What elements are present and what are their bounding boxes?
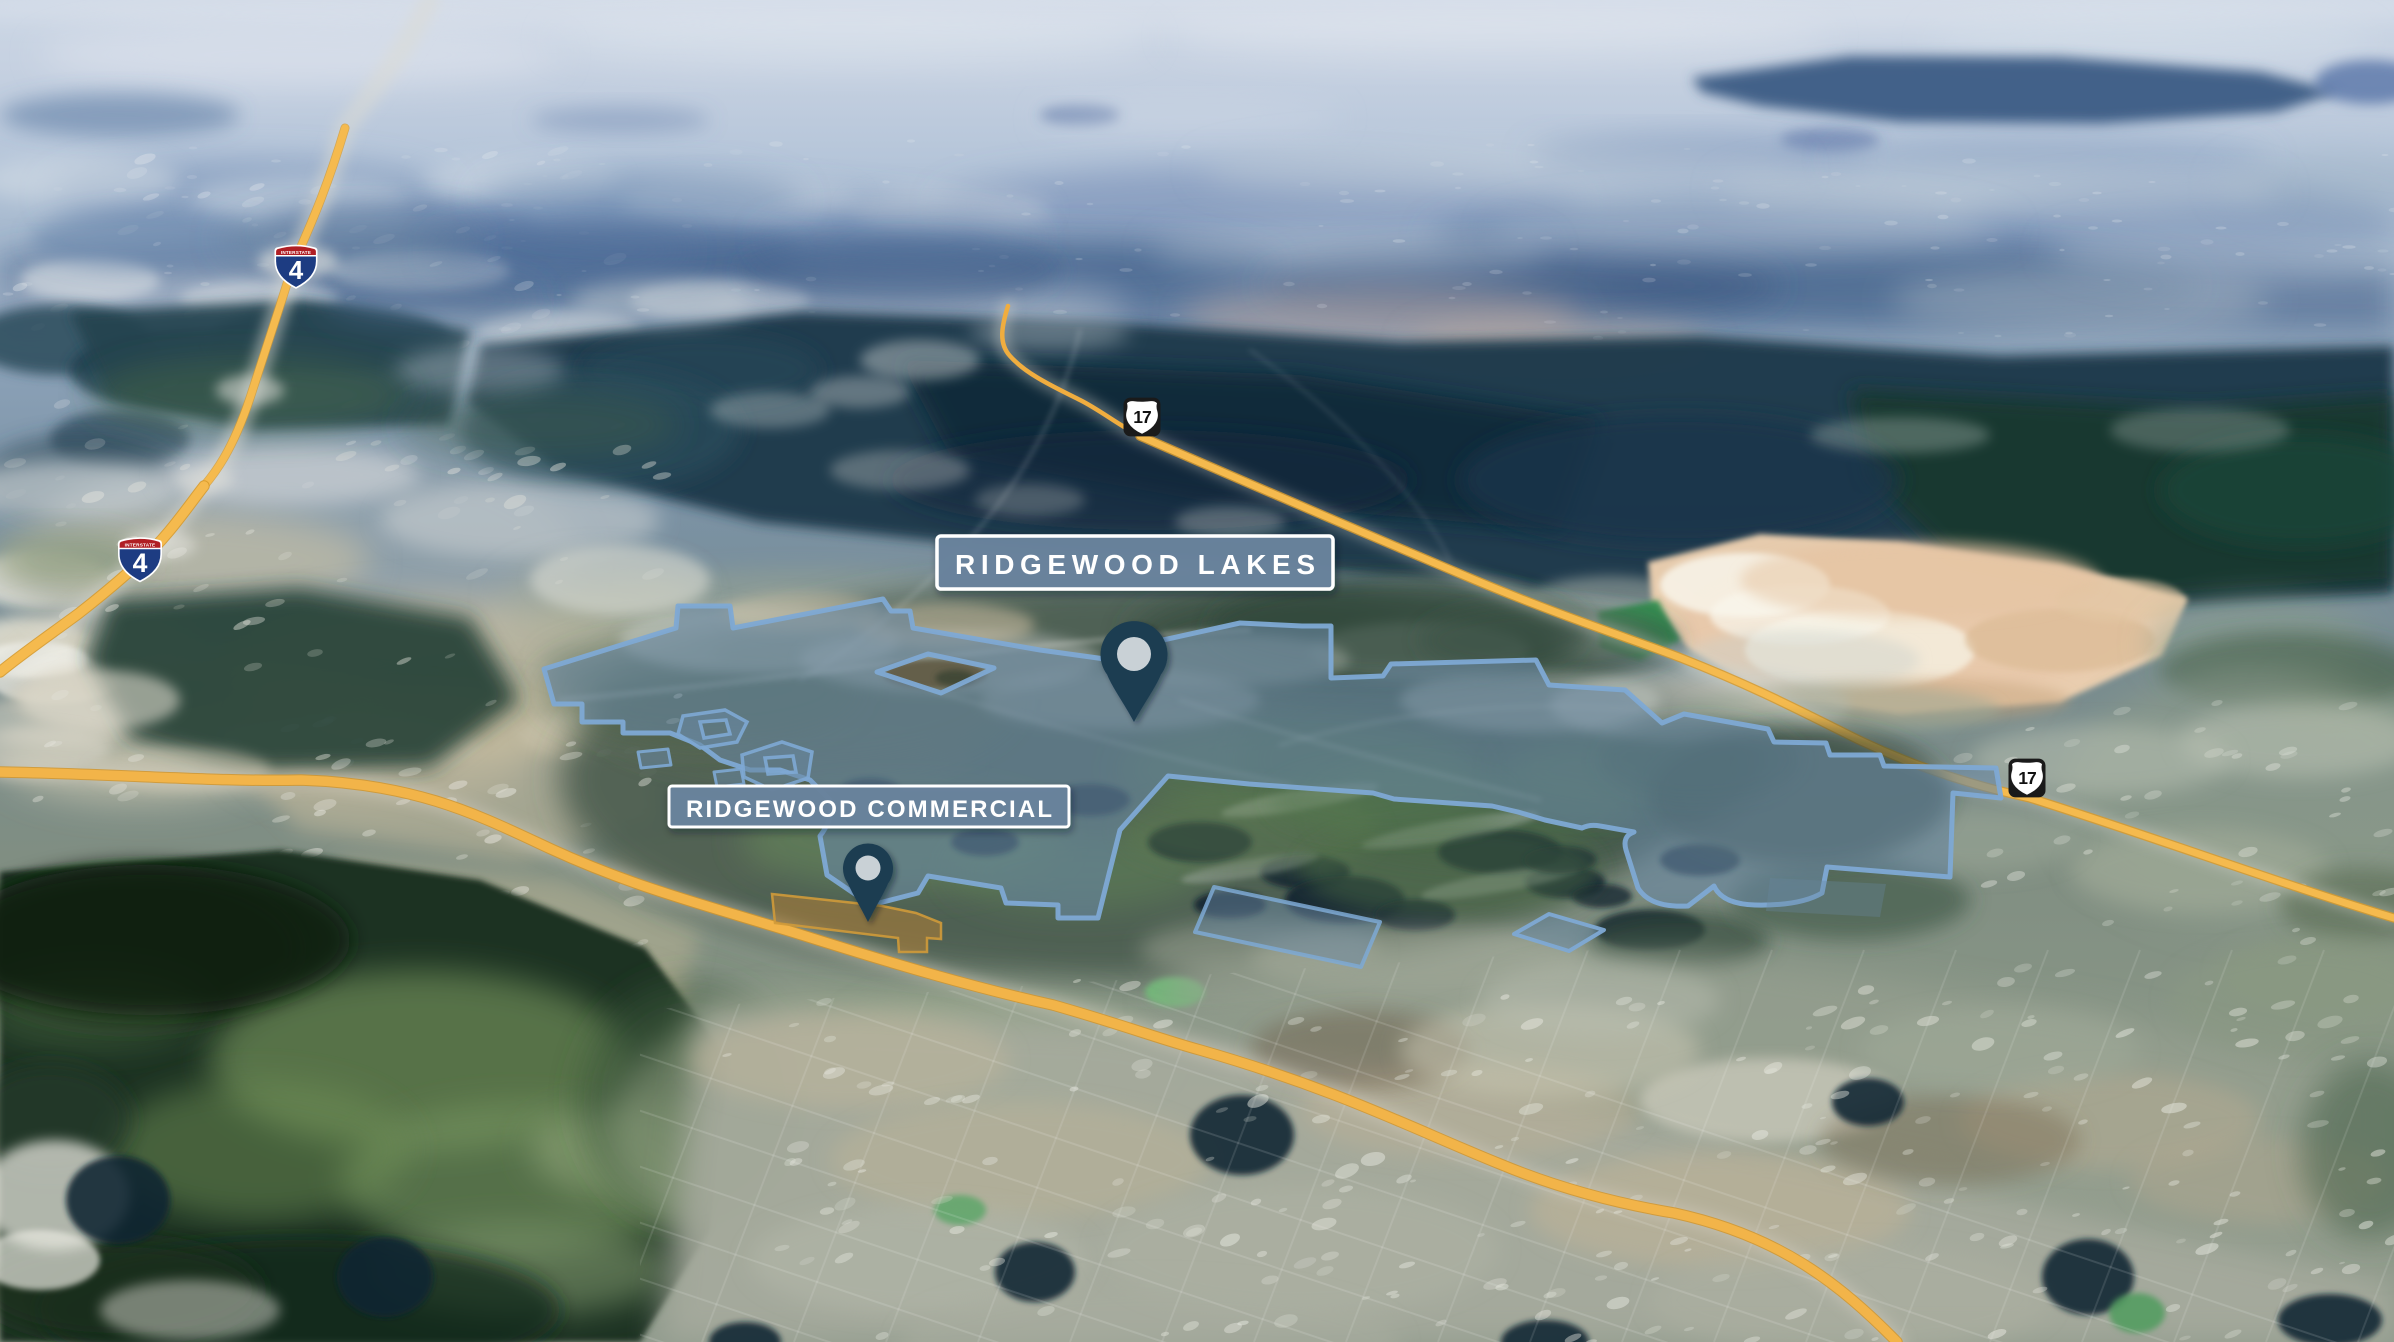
svg-text:17: 17 (2018, 768, 2036, 788)
svg-text:17: 17 (1133, 407, 1151, 427)
svg-text:4: 4 (133, 548, 148, 578)
svg-text:INTERSTATE: INTERSTATE (125, 543, 156, 548)
svg-text:RIDGEWOOD LAKES: RIDGEWOOD LAKES (955, 549, 1315, 580)
svg-text:RIDGEWOOD COMMERCIAL: RIDGEWOOD COMMERCIAL (686, 796, 1052, 823)
svg-text:4: 4 (289, 255, 304, 285)
